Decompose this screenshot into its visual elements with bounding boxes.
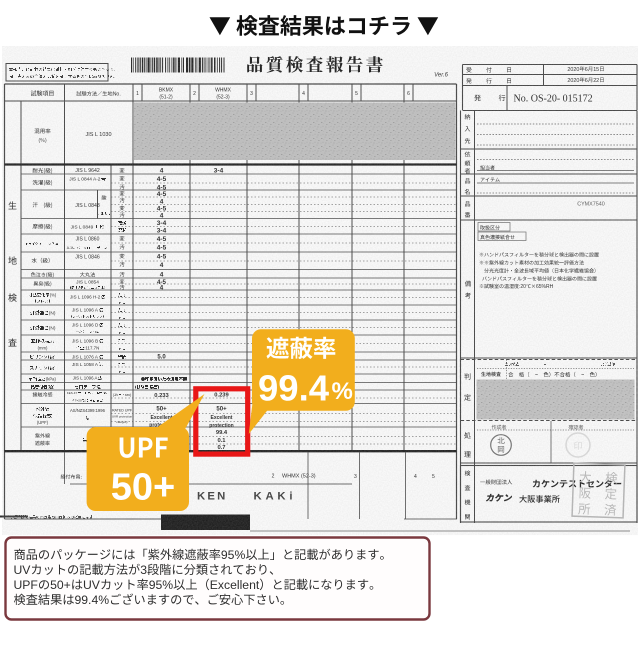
svg-text:99.4%: 99.4%: [75, 593, 110, 607]
svg-text:95%: 95%: [221, 548, 246, 562]
svg-text:95%: 95%: [149, 578, 174, 592]
svg-text:Excellent: Excellent: [210, 578, 260, 592]
svg-text:50+: 50+: [111, 467, 175, 509]
svg-text:50+: 50+: [50, 578, 71, 592]
svg-text:UV: UV: [14, 563, 32, 577]
svg-text:UPF: UPF: [14, 578, 38, 592]
svg-text:99.4: 99.4: [258, 368, 330, 409]
svg-text:UV: UV: [83, 578, 101, 592]
svg-text:3: 3: [140, 563, 147, 577]
svg-text:%: %: [332, 378, 353, 405]
